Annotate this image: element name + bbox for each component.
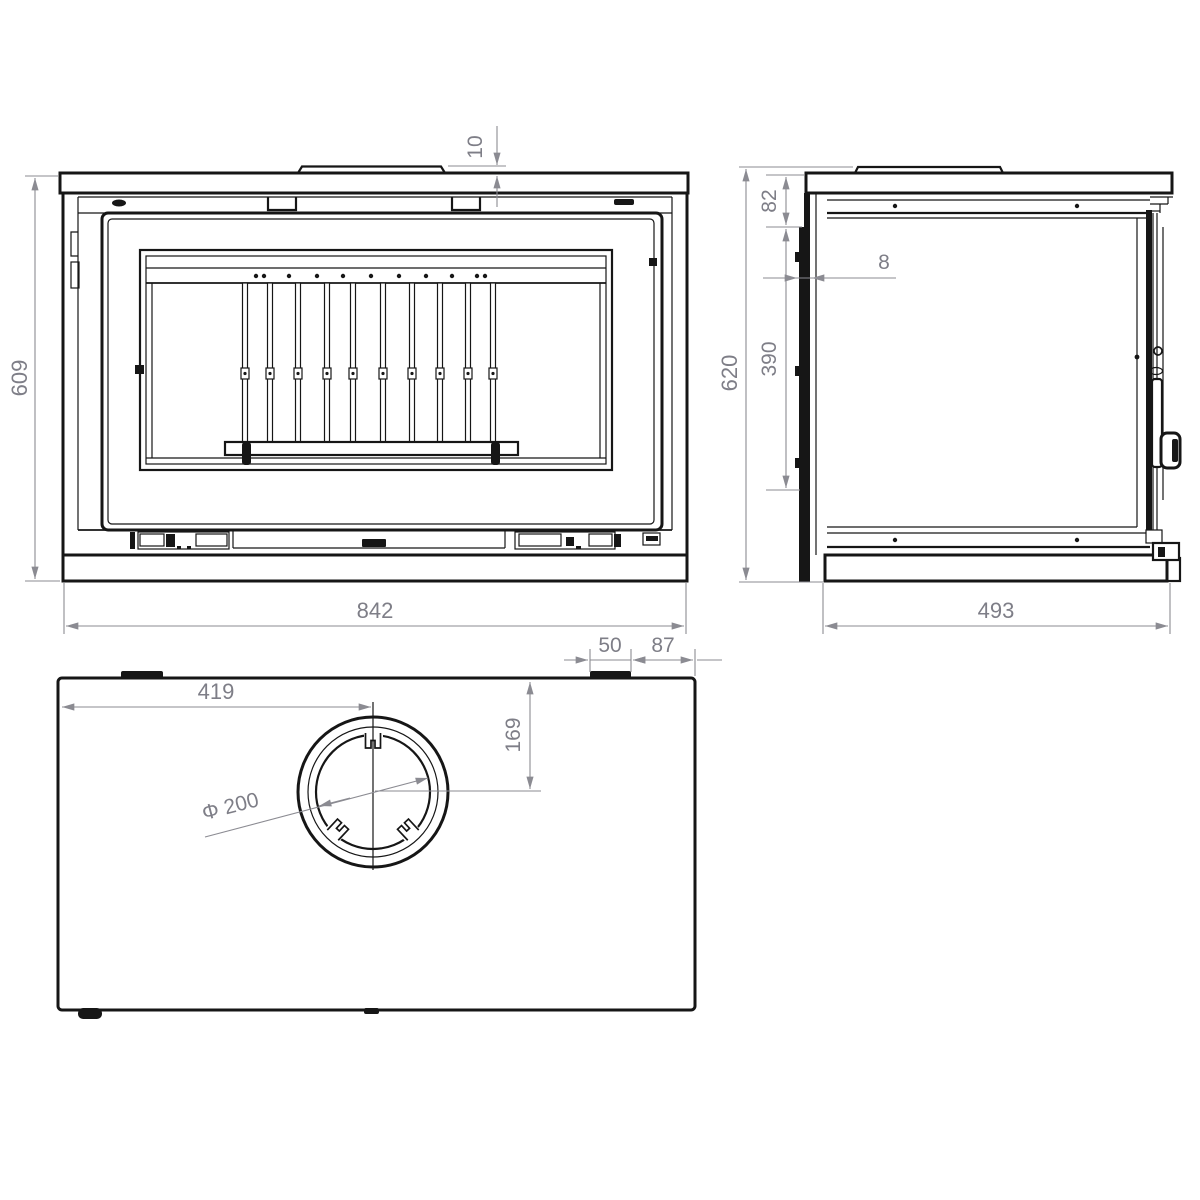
dim-plan-bracket-width: 50: [564, 634, 657, 672]
front-window-screws-shape: [369, 274, 373, 278]
dim-side-top-section: 82: [758, 175, 804, 227]
front-left-step: [71, 232, 78, 256]
front-hinge-cluster-left: [130, 532, 229, 549]
side-handle-screw: [1135, 355, 1140, 360]
front-hinge-cluster-right-shape: [614, 534, 621, 547]
side-top-screw-1: [893, 204, 897, 208]
side-front-wall-upper: [804, 193, 810, 227]
front-hinge-cluster-left-shape: [177, 546, 181, 549]
grille-bar: [323, 283, 331, 442]
front-air-control-tab: [362, 539, 386, 547]
dim-front-overall-width-shape: 842: [357, 598, 394, 623]
side-handle-pivot: [1154, 347, 1162, 355]
flue-notch-lower-left: [323, 817, 350, 844]
side-handle-grip-fill: [1172, 439, 1178, 462]
side-top-screw-2: [1075, 204, 1079, 208]
side-plinth: [825, 555, 1167, 581]
grille-bar: [408, 283, 416, 442]
front-window-screws-shape: [483, 274, 487, 278]
side-bottom-screw-1: [893, 538, 897, 542]
grille-bar-shape: [410, 283, 415, 442]
side-rear-foot: [1167, 558, 1180, 581]
side-wall-lug-2: [795, 366, 800, 376]
grille-bar-shape: [438, 372, 441, 375]
dim-side-panel-thickness-shape: 8: [878, 251, 890, 274]
front-latch-plate-right: [614, 199, 634, 205]
grille-bar-shape: [381, 372, 384, 375]
dim-plan-flue-from-back-shape: 169: [502, 717, 525, 752]
plan-flue-collar: [298, 702, 448, 870]
front-view: [60, 167, 688, 582]
front-window-screws-shape: [397, 274, 401, 278]
side-bottom-hinge-shape: [1146, 530, 1162, 543]
side-door-edge: [1146, 197, 1173, 530]
front-window-screws-shape: [315, 274, 319, 278]
front-plinth: [63, 555, 687, 581]
side-front-wall: [799, 227, 810, 582]
side-view: [795, 167, 1180, 582]
dim-side-overall-height: 620: [717, 167, 853, 582]
dimension-annotations: 609 842 10 620 82: [7, 126, 1170, 837]
front-hinge-cluster-right-shape: [576, 546, 581, 549]
dim-front-overall-height: 609: [7, 176, 60, 581]
side-top-plate: [806, 173, 1172, 193]
dim-plan-bracket-to-edge: 87: [633, 634, 722, 676]
front-hinge-far-right-pin: [646, 536, 658, 541]
front-window-screws-shape: [424, 274, 428, 278]
grille-bar: [266, 283, 274, 442]
grille-bar-shape: [351, 372, 354, 375]
grille-bar-shape: [325, 283, 330, 442]
grille-bar-shape: [466, 372, 469, 375]
dim-front-overall-width: 842: [64, 583, 686, 634]
front-latch-keeper-right: [649, 258, 657, 266]
plan-back-bracket-left: [121, 671, 163, 679]
grille-bar-shape: [438, 283, 443, 442]
side-wall-lug-1: [795, 252, 800, 262]
grille-bar: [241, 283, 249, 442]
grille-bar: [436, 283, 444, 442]
side-bottom-screw-2: [1075, 538, 1079, 542]
grille-bar-shape: [410, 372, 413, 375]
front-hinge-cluster-left-shape: [187, 546, 191, 549]
front-hinge-cluster-left-shape: [166, 534, 175, 547]
grille-bar-shape: [268, 283, 273, 442]
front-hinge-cluster-right: [515, 532, 621, 549]
dim-side-overall-height-shape: 620: [717, 355, 742, 392]
front-grille-bracket: [225, 442, 518, 455]
plan-front-foot-centre: [364, 1008, 379, 1014]
front-grille-post-left: [242, 442, 251, 465]
grille-bar-shape: [491, 372, 494, 375]
grille-bar: [294, 283, 302, 442]
grille-bar-shape: [296, 283, 301, 442]
dim-front-top-shield-height-shape: 10: [464, 135, 487, 158]
front-window-inner-frame: [146, 256, 606, 464]
flue-notch-lower-right: [396, 818, 423, 845]
grille-bar-shape: [325, 372, 328, 375]
plan-back-bracket-right: [590, 671, 631, 679]
dim-front-overall-height-shape: 609: [7, 360, 32, 397]
technical-drawing-page: 609 842 10 620 82: [0, 0, 1200, 1200]
dim-plan-flue-diameter-shape: [319, 798, 350, 806]
side-bottom-hinge-shape: [1158, 547, 1165, 557]
dim-plan-flue-from-left: 419: [62, 679, 371, 707]
dim-side-mid-section-shape: 390: [758, 341, 781, 376]
grille-bar-shape: [466, 283, 471, 442]
top-view: [58, 671, 695, 1019]
grille-bar-shape: [243, 283, 248, 442]
dim-plan-flue-diameter: Φ 200: [200, 778, 428, 837]
grille-bar-shape: [268, 372, 271, 375]
front-body-outline: [63, 193, 687, 555]
side-wall-lug-3: [795, 458, 800, 468]
side-door-edge-shape: [1146, 210, 1152, 530]
front-window-screws-shape: [254, 274, 258, 278]
dim-plan-flue-from-back: 169: [375, 682, 541, 791]
grille-bar: [489, 283, 497, 442]
grille-bar-shape: [243, 372, 246, 375]
dim-plan-flue-from-left-shape: 419: [198, 679, 235, 704]
front-window-screws-shape: [450, 274, 454, 278]
front-window-screws: [254, 274, 487, 278]
dim-side-top-section-shape: 82: [758, 189, 781, 212]
front-window-screws-shape: [287, 274, 291, 278]
grille-bar-shape: [491, 283, 496, 442]
plan-front-foot-left: [78, 1008, 102, 1019]
grille-bar-shape: [296, 372, 299, 375]
front-window-screws-shape: [475, 274, 479, 278]
front-log-guard-grille: [241, 283, 497, 442]
stove-technical-drawing: 609 842 10 620 82: [0, 0, 1200, 1200]
front-clip-left: [268, 197, 296, 210]
grille-bar-shape: [351, 283, 356, 442]
front-grille-post-right: [491, 442, 500, 465]
front-hinge-cluster-left-shape: [130, 532, 135, 549]
dim-side-overall-depth: 493: [823, 583, 1170, 634]
front-clip-right: [452, 197, 480, 210]
front-hinge-cluster-right-shape: [566, 537, 574, 546]
dim-side-panel-thickness: 8: [763, 251, 896, 278]
front-latch-plate-left: [112, 200, 126, 207]
side-bottom-hinge-shape: [1153, 543, 1179, 560]
grille-bar: [464, 283, 472, 442]
front-window-screws-shape: [341, 274, 345, 278]
grille-bar: [379, 283, 387, 442]
dim-plan-bracket-to-edge-shape: 87: [651, 634, 674, 657]
front-top-plate: [60, 173, 688, 193]
dim-front-top-shield-height: 10: [448, 126, 506, 207]
grille-bar: [349, 283, 357, 442]
dim-plan-bracket-width-shape: 50: [598, 634, 621, 657]
plan-outline: [58, 678, 695, 1010]
dim-side-mid-section: 390: [758, 229, 800, 490]
front-window-screws-shape: [262, 274, 266, 278]
dim-side-overall-depth-shape: 493: [978, 598, 1015, 623]
grille-bar-shape: [381, 283, 386, 442]
dim-plan-flue-diameter-shape: Φ 200: [200, 788, 262, 825]
